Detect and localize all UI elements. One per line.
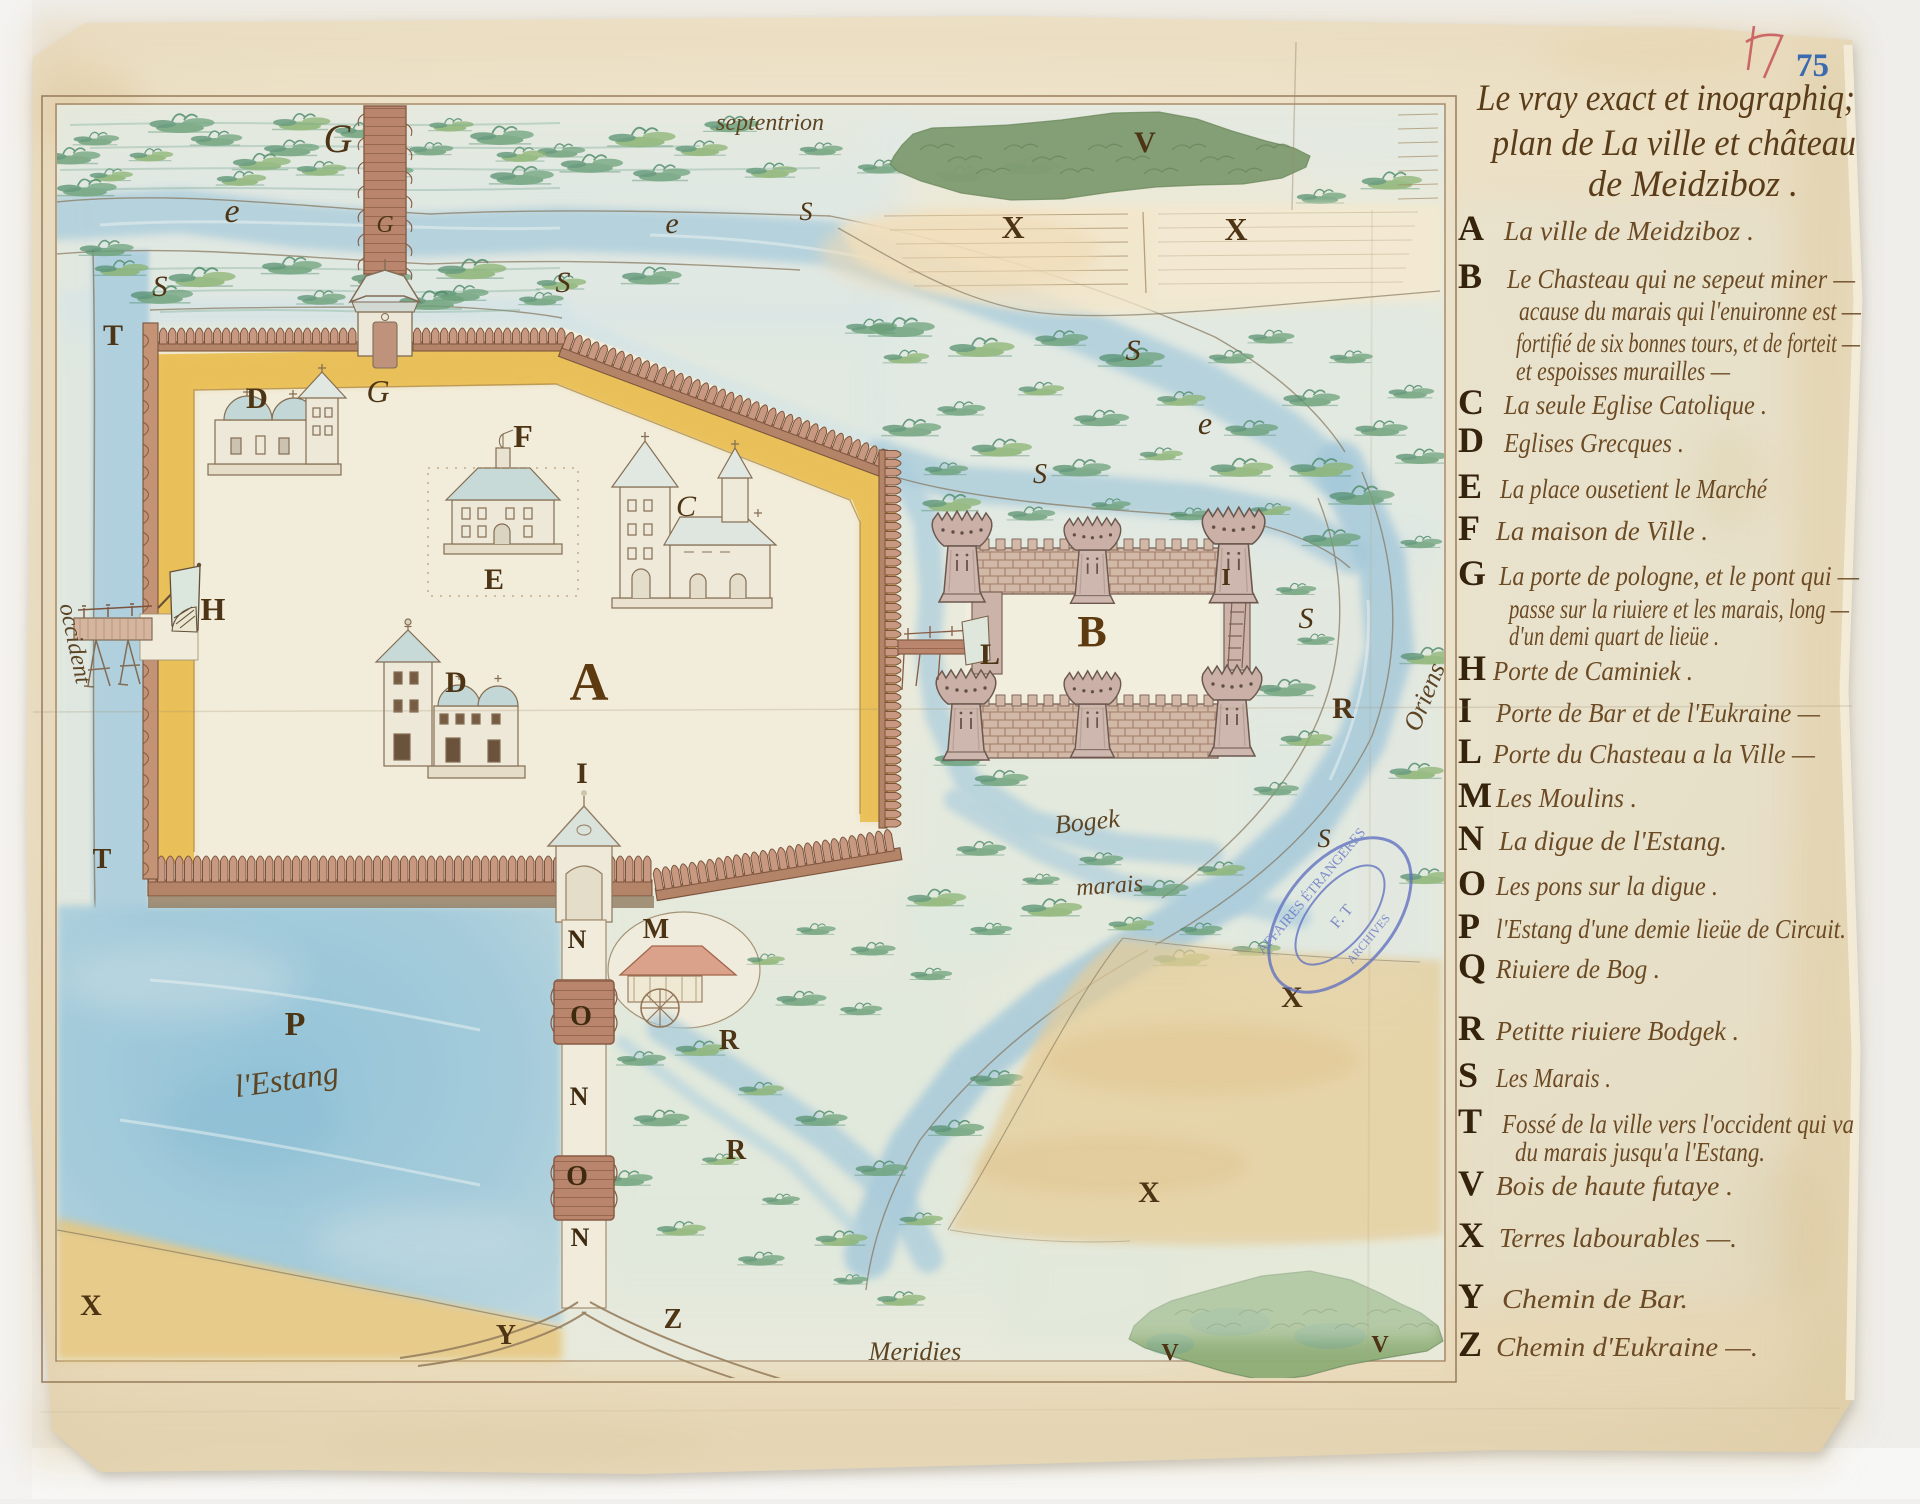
- svg-text:75: 75: [1796, 48, 1829, 84]
- svg-text:T: T: [103, 319, 123, 352]
- svg-text:de Meidziboz .: de Meidziboz .: [1588, 164, 1798, 205]
- svg-text:Les Moulins .: Les Moulins .: [1495, 783, 1637, 813]
- svg-text:C: C: [676, 490, 697, 523]
- svg-text:G: G: [376, 212, 393, 238]
- svg-text:O: O: [566, 1161, 588, 1192]
- svg-text:Terres labourables —.: Terres labourables —.: [1499, 1223, 1737, 1253]
- svg-text:fortifié de six bonnes tours,: fortifié de six bonnes tours, et de fort…: [1516, 328, 1861, 358]
- svg-text:G: G: [1458, 553, 1486, 593]
- svg-text:T: T: [93, 844, 112, 875]
- svg-text:F: F: [513, 418, 533, 454]
- svg-text:S: S: [1318, 824, 1331, 853]
- svg-text:R: R: [1332, 692, 1354, 725]
- svg-text:C: C: [1458, 382, 1484, 422]
- svg-text:S: S: [556, 266, 571, 299]
- svg-text:D: D: [445, 666, 467, 699]
- svg-text:P: P: [285, 1006, 306, 1043]
- svg-text:X: X: [1458, 1215, 1484, 1255]
- svg-text:e: e: [665, 207, 678, 240]
- svg-text:La ville de Meidziboz .: La ville de Meidziboz .: [1503, 216, 1754, 246]
- svg-text:O: O: [570, 1001, 592, 1032]
- svg-text:Porte du Chasteau a la Ville —: Porte du Chasteau a la Ville —: [1492, 739, 1816, 769]
- svg-text:S: S: [1033, 459, 1047, 490]
- svg-text:La digue de l'Estang.: La digue de l'Estang.: [1498, 826, 1727, 856]
- svg-text:R: R: [1458, 1008, 1485, 1048]
- svg-text:G: G: [366, 373, 389, 409]
- svg-text:N: N: [570, 1082, 589, 1111]
- svg-text:Y: Y: [1458, 1276, 1484, 1316]
- svg-text:F: F: [1458, 508, 1480, 548]
- svg-text:B: B: [1458, 256, 1482, 296]
- svg-text:H: H: [1458, 648, 1486, 688]
- svg-text:T: T: [1458, 1101, 1482, 1141]
- svg-text:Fossé de la ville vers l'occid: Fossé de la ville vers l'occident qui va: [1501, 1109, 1854, 1139]
- svg-text:La seule Eglise Catolique .: La seule Eglise Catolique .: [1503, 390, 1767, 420]
- svg-text:Z: Z: [664, 1304, 683, 1335]
- svg-text:Eglises Grecques .: Eglises Grecques .: [1503, 428, 1684, 458]
- svg-text:Le vray exact et inographiq;: Le vray exact et inographiq;: [1476, 78, 1855, 119]
- svg-text:Q: Q: [1458, 946, 1486, 986]
- svg-text:et espoisses murailles —: et espoisses murailles —: [1516, 356, 1731, 386]
- svg-text:L: L: [980, 638, 1000, 671]
- svg-text:S: S: [800, 197, 813, 226]
- svg-text:N: N: [568, 925, 587, 954]
- svg-text:E: E: [484, 563, 504, 596]
- svg-text:R: R: [719, 1025, 740, 1056]
- svg-text:X: X: [1138, 1176, 1160, 1209]
- svg-text:O: O: [1458, 863, 1486, 903]
- svg-text:La porte de pologne, et le pon: La porte de pologne, et le pont qui —: [1498, 561, 1860, 591]
- svg-text:B: B: [1077, 607, 1106, 656]
- svg-text:d'un demi quart de lieüe .: d'un demi quart de lieüe .: [1509, 621, 1719, 651]
- svg-text:I: I: [1458, 690, 1472, 730]
- svg-text:passe sur la riuiere et les ma: passe sur la riuiere et les marais, long…: [1507, 594, 1849, 624]
- svg-text:Les Marais .: Les Marais .: [1495, 1063, 1611, 1093]
- svg-text:X: X: [80, 1289, 102, 1322]
- svg-text:La place ousetient le Marché: La place ousetient le Marché: [1499, 474, 1768, 504]
- svg-text:Meridies: Meridies: [868, 1337, 961, 1366]
- svg-text:La maison de Ville .: La maison de Ville .: [1495, 516, 1708, 546]
- svg-text:l'Estang d'une demie lieüe de: l'Estang d'une demie lieüe de Circuit.: [1496, 914, 1846, 944]
- svg-text:Les pons sur la digue .: Les pons sur la digue .: [1495, 871, 1718, 901]
- svg-text:Y: Y: [496, 1320, 516, 1351]
- svg-text:Porte de Bar et de l'Eukraine: Porte de Bar et de l'Eukraine —: [1495, 698, 1821, 728]
- svg-text:I: I: [576, 757, 588, 790]
- svg-text:du marais jusqu'a l'Estang.: du marais jusqu'a l'Estang.: [1515, 1137, 1765, 1167]
- svg-text:M: M: [643, 914, 669, 945]
- svg-text:X: X: [1224, 211, 1247, 247]
- svg-text:H: H: [201, 591, 226, 627]
- svg-text:D: D: [1458, 420, 1484, 460]
- svg-text:V: V: [1134, 126, 1156, 159]
- svg-text:acause du marais qui l'enuiron: acause du marais qui l'enuironne est —: [1519, 296, 1862, 326]
- svg-text:M: M: [1458, 775, 1492, 815]
- svg-text:plan de La ville et château: plan de La ville et château: [1489, 123, 1856, 164]
- svg-text:Riuiere de Bog .: Riuiere de Bog .: [1495, 954, 1660, 984]
- svg-text:marais: marais: [1075, 871, 1143, 902]
- svg-text:P: P: [1458, 906, 1480, 946]
- svg-text:N: N: [1458, 818, 1484, 858]
- svg-text:S: S: [1458, 1055, 1478, 1095]
- svg-text:V: V: [1371, 1332, 1389, 1358]
- svg-text:S: S: [1126, 334, 1141, 367]
- svg-text:e: e: [224, 193, 239, 230]
- svg-text:V: V: [1161, 1340, 1179, 1366]
- svg-text:Petitte riuiere Bodgek .: Petitte riuiere Bodgek .: [1495, 1016, 1739, 1046]
- svg-text:L: L: [1458, 731, 1482, 771]
- svg-text:Le Chasteau qui ne sepeut mine: Le Chasteau qui ne sepeut miner —: [1506, 264, 1856, 294]
- svg-text:Chemin de Bar.: Chemin de Bar.: [1502, 1284, 1688, 1314]
- svg-text:D: D: [246, 382, 268, 415]
- svg-text:N: N: [571, 1223, 590, 1252]
- svg-text:Chemin d'Eukraine —.: Chemin d'Eukraine —.: [1496, 1332, 1758, 1362]
- svg-text:V: V: [1458, 1163, 1484, 1203]
- svg-text:E: E: [1458, 466, 1482, 506]
- svg-text:X: X: [1001, 209, 1024, 245]
- svg-text:septentrion: septentrion: [716, 110, 824, 136]
- svg-text:e: e: [1198, 405, 1212, 441]
- svg-text:S: S: [1299, 602, 1314, 635]
- svg-text:S: S: [153, 270, 168, 303]
- svg-text:A: A: [1458, 208, 1484, 248]
- svg-text:Bois de haute futaye .: Bois de haute futaye .: [1496, 1171, 1733, 1201]
- svg-text:Porte de Caminiek .: Porte de Caminiek .: [1492, 656, 1693, 686]
- svg-text:A: A: [570, 652, 609, 712]
- svg-text:Z: Z: [1458, 1324, 1482, 1364]
- svg-text:I: I: [1221, 565, 1230, 591]
- svg-text:G: G: [324, 116, 353, 161]
- svg-text:R: R: [726, 1135, 747, 1166]
